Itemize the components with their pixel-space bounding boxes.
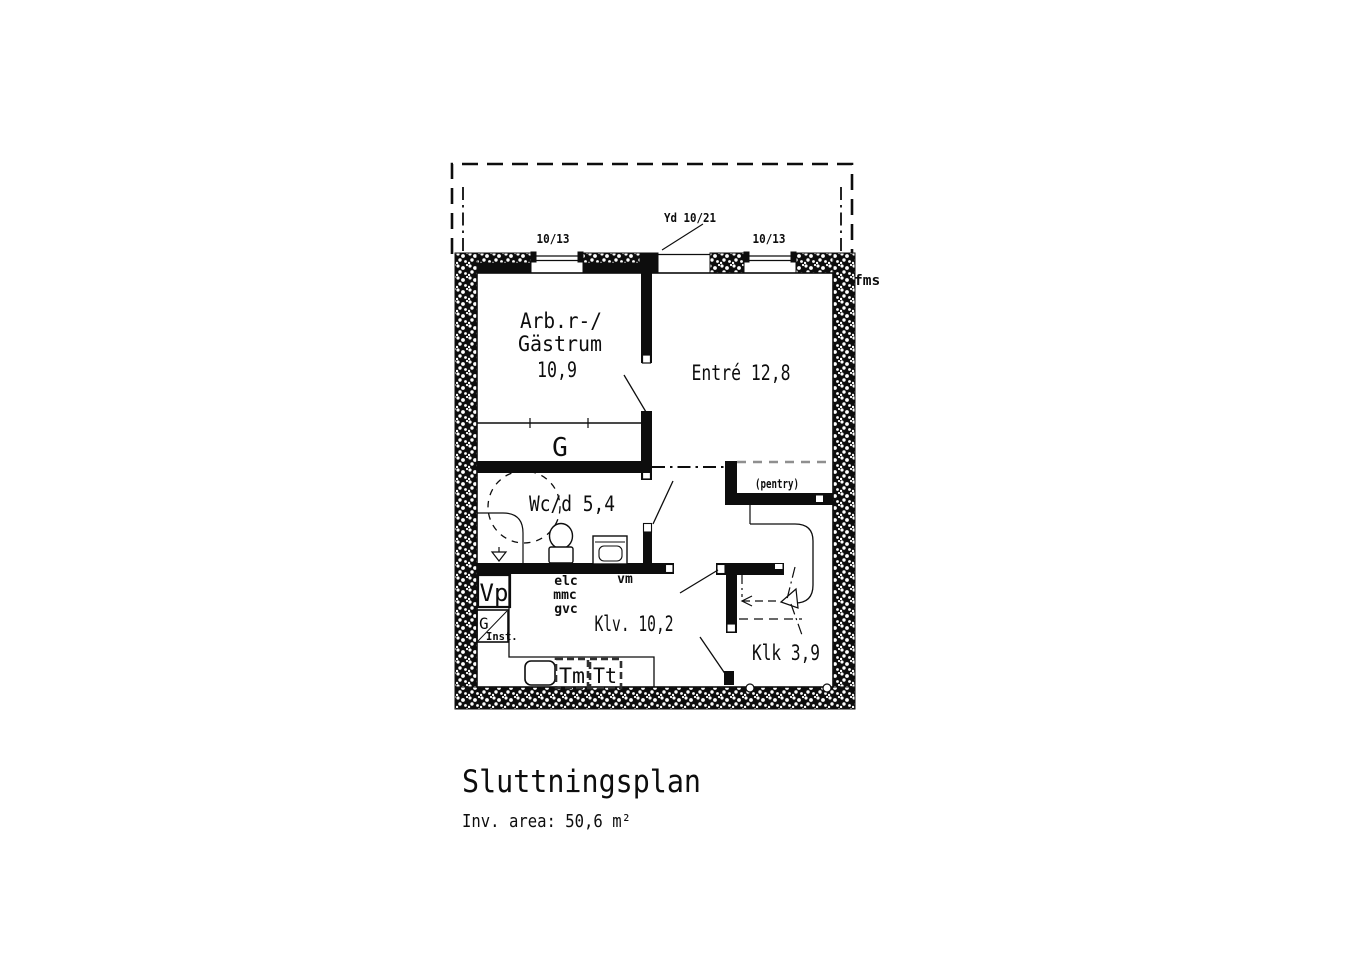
terrace-outline xyxy=(452,164,852,254)
vp-label: Vp xyxy=(480,579,509,607)
fms-label: fms xyxy=(854,273,880,289)
labels: 10/13 10/13 Yd 10/21 fms Arb.r-/ Gästrum… xyxy=(479,210,880,688)
wc-door-leaf xyxy=(653,481,673,524)
vm-label: vm xyxy=(617,572,633,587)
mmc-label: mmc xyxy=(553,588,576,603)
shower-outline xyxy=(477,513,523,563)
wc-label: Wc/d 5,4 xyxy=(529,492,615,516)
entry-door-label: Yd 10/21 xyxy=(664,210,716,225)
wc-fixtures xyxy=(477,471,627,564)
wardrobe-label: G xyxy=(552,433,568,463)
window-right-label: 10/13 xyxy=(753,231,786,246)
entre-label: Entré 12,8 xyxy=(692,361,791,385)
tm-label: Tm xyxy=(559,664,585,688)
elc-label: elc xyxy=(554,574,577,589)
pantry-label: (pentry) xyxy=(755,476,799,491)
closet-label: Klk 3,9 xyxy=(752,641,820,665)
title-block: Sluttningsplan Inv. area: 50,6 m² xyxy=(462,764,701,832)
toilet-icon xyxy=(549,524,573,564)
gvc-label: gvc xyxy=(554,602,577,617)
laundry-label: Klv. 10,2 xyxy=(595,612,674,636)
washing-machine-icon xyxy=(593,536,627,564)
floor-drain-icon xyxy=(492,547,506,561)
window-glazing xyxy=(531,255,796,261)
guestroom-area-label: 10,9 xyxy=(537,358,577,382)
entry-door-leader xyxy=(662,224,703,250)
guestroom-label-line1: Arb.r-/ xyxy=(520,309,602,333)
tt-label: Tt xyxy=(593,664,617,688)
closet-door-leaf xyxy=(700,637,728,678)
sink-icon xyxy=(525,661,555,685)
inst-label: Inst. xyxy=(486,631,518,643)
guestroom-label-line2: Gästrum xyxy=(518,332,602,356)
plan-title: Sluttningsplan xyxy=(462,764,701,800)
guestroom-door-leaf xyxy=(624,375,646,412)
plan-area-text: Inv. area: 50,6 m² xyxy=(462,812,631,832)
laundry-door-leaf xyxy=(680,570,718,593)
floorplan-page: 10/13 10/13 Yd 10/21 fms Arb.r-/ Gästrum… xyxy=(0,0,1363,960)
floor-plan-drawing: 10/13 10/13 Yd 10/21 fms Arb.r-/ Gästrum… xyxy=(0,0,1363,960)
window-left-label: 10/13 xyxy=(537,231,570,246)
